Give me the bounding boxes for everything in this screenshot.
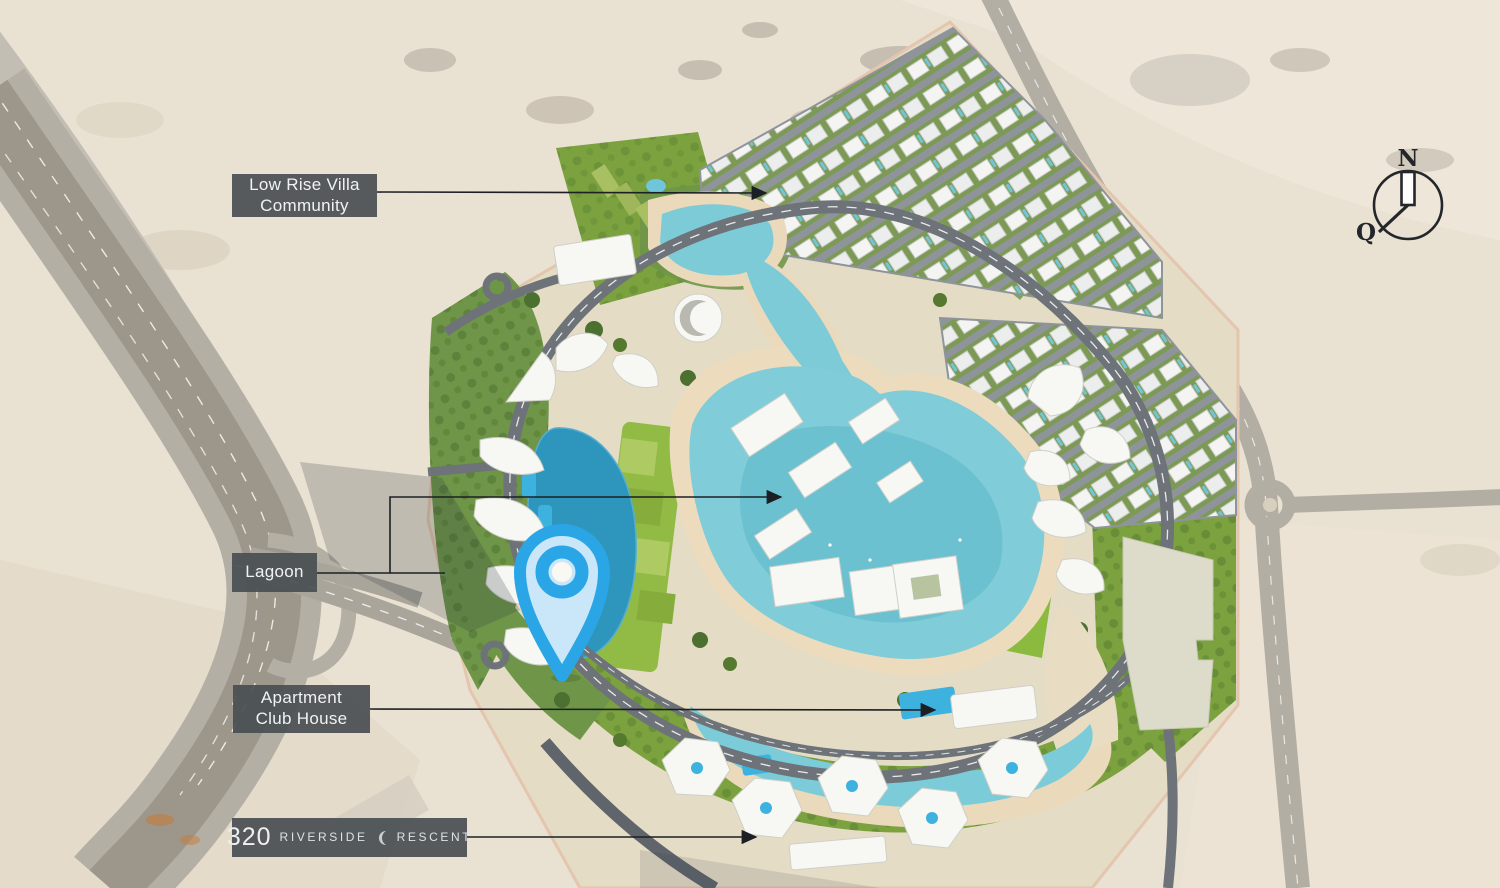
logo-word-riverside: RIVERSIDE <box>280 830 368 845</box>
label-low-rise-line1: Low Rise Villa <box>249 175 360 196</box>
label-low-rise-villa-community: Low Rise Villa Community <box>232 174 377 217</box>
crescent-courtyard-building <box>674 294 722 342</box>
label-lagoon-text: Lagoon <box>245 562 304 583</box>
logo-number: 320 <box>227 822 272 853</box>
pin-center-dot <box>552 562 572 582</box>
masterplan-map: N Q <box>0 0 1500 888</box>
compass-north-letter: N <box>1397 145 1418 172</box>
masterplan-screenshot: N Q Low Rise Villa Community Lagoon Apar… <box>0 0 1500 888</box>
label-apartment-club-house: Apartment Club House <box>233 685 370 733</box>
leader-club-house <box>370 709 935 710</box>
logo-word-rescent: RESCENT <box>397 830 473 845</box>
compass-needle <box>1402 172 1415 205</box>
label-low-rise-line2: Community <box>249 196 360 217</box>
leader-low-rise-villa <box>377 192 766 193</box>
label-club-line1: Apartment <box>256 688 348 709</box>
label-lagoon: Lagoon <box>232 553 317 592</box>
label-club-line2: Club House <box>256 709 348 730</box>
crescent-icon <box>376 826 393 850</box>
vacant-plot <box>1123 537 1213 730</box>
compass-qibla-letter: Q <box>1356 219 1376 246</box>
riverside-crescent-logo: 320 RIVERSIDE RESCENT <box>227 822 472 853</box>
label-320-riverside-crescent: 320 RIVERSIDE RESCENT <box>232 818 467 857</box>
